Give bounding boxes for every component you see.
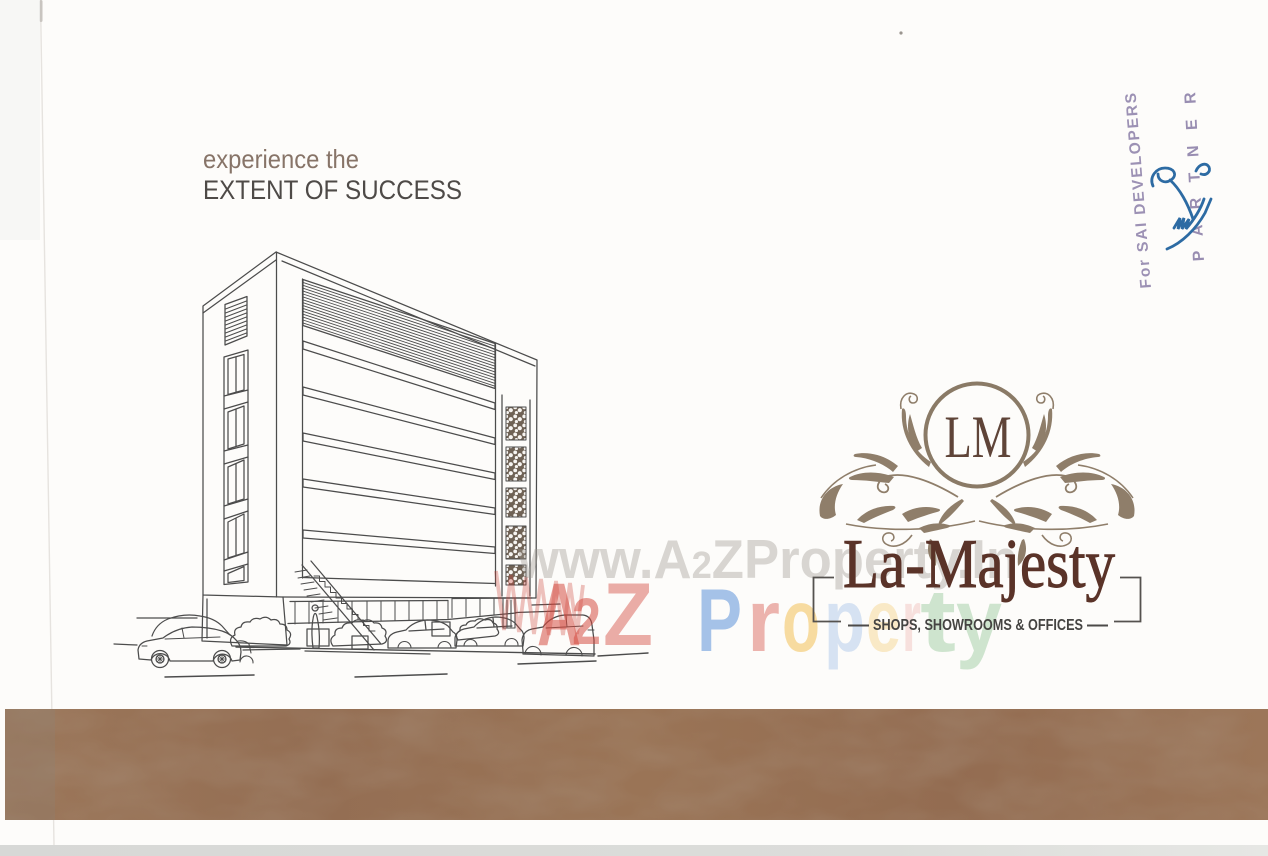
svg-text:La-Majesty: La-Majesty	[843, 526, 1115, 603]
svg-text:2: 2	[572, 584, 601, 658]
svg-text:LM: LM	[945, 404, 1012, 470]
svg-text:SHOPS, SHOWROOMS & OFFICES: SHOPS, SHOWROOMS & OFFICES	[873, 617, 1083, 634]
svg-text:EXTENT OF SUCCESS: EXTENT OF SUCCESS	[203, 175, 462, 205]
svg-text:experience the: experience the	[203, 144, 359, 174]
